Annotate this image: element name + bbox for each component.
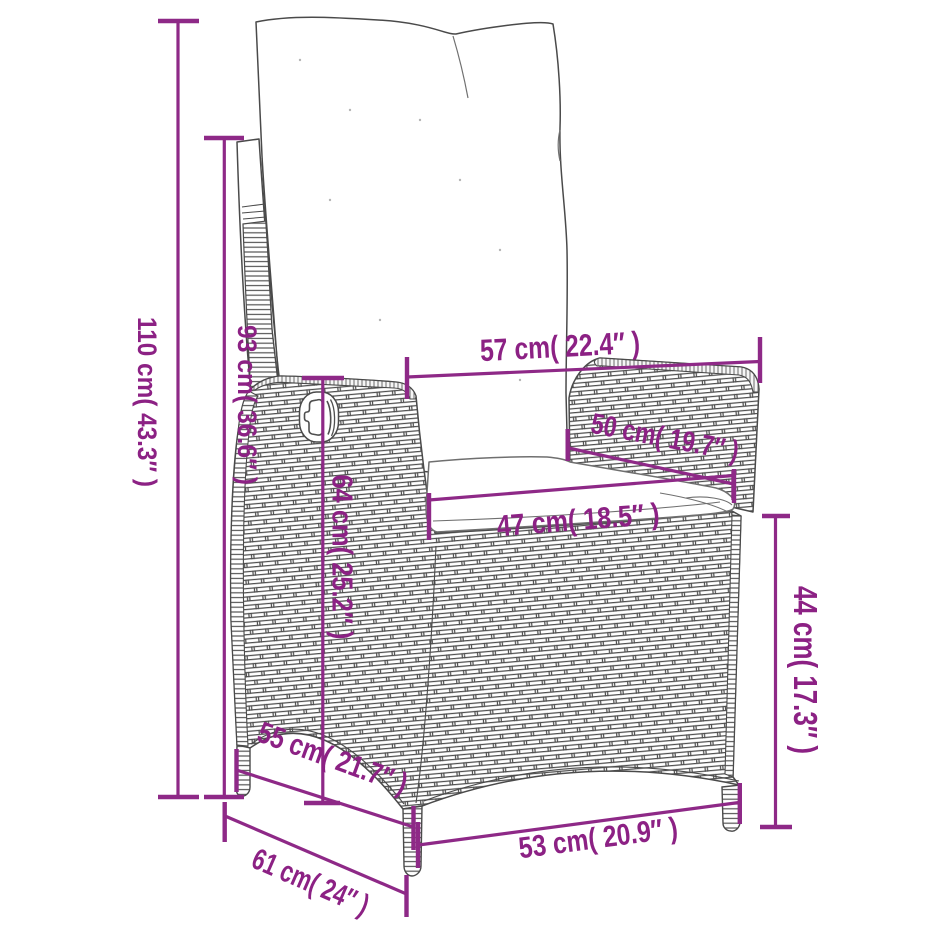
svg-text:44 cm( 17.3″ ): 44 cm( 17.3″ ): [787, 586, 824, 754]
svg-text:93 cm( 36.6″ ): 93 cm( 36.6″ ): [232, 325, 262, 485]
svg-text:64 cm( 25.2″ ): 64 cm( 25.2″ ): [326, 475, 358, 640]
svg-text:110 cm( 43.3″ ): 110 cm( 43.3″ ): [132, 317, 162, 487]
